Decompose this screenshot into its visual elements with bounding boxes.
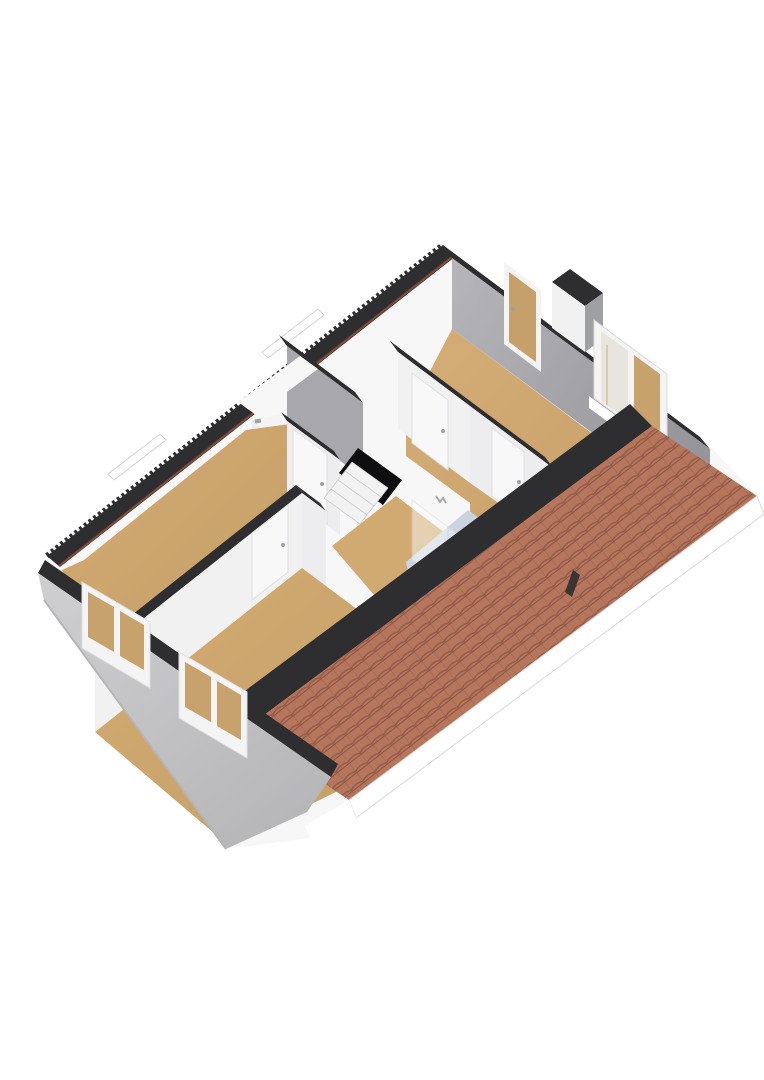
bedroom-lower-door-handle <box>281 543 285 547</box>
floorplan-3d-render <box>0 0 764 1080</box>
bedroom-upper-door-handle <box>320 482 324 486</box>
bathroom-door-handle <box>517 480 521 484</box>
bigroom-entry-door-handle <box>441 429 445 433</box>
glazed-door-handle <box>511 307 515 311</box>
floorplan-canvas <box>0 0 764 1080</box>
